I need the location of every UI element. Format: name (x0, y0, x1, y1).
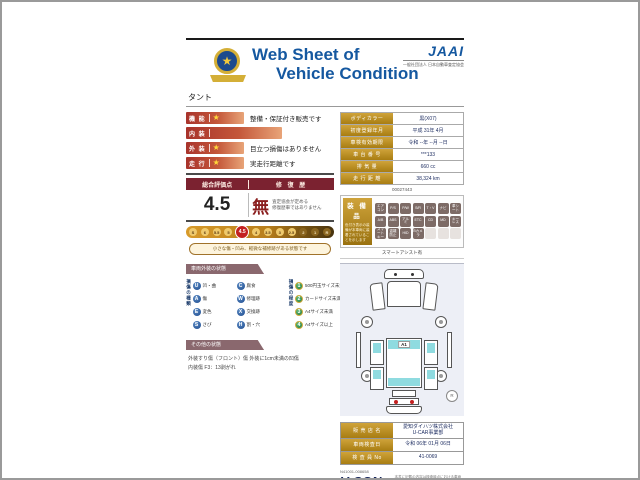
diagram-corner-mark: R (446, 390, 458, 402)
roof: A1 (386, 338, 422, 388)
rear-panel (389, 398, 419, 405)
sheet-header: ★ Web Sheet of Vehicle Condition JAAI 一般… (186, 44, 464, 90)
info-label: 車検有効期限 (341, 137, 393, 148)
damage-type-item: H割・穴 (237, 318, 283, 331)
equipment-badge: スマートキー (375, 228, 386, 239)
damage-type-item: A傷 (193, 292, 235, 305)
equipment-panel: 装 備 品 色付き表示の装備が本車両に装着されていることを示します エアコンP/… (340, 195, 464, 248)
repair-note-line1: 査定協会が定める (272, 199, 308, 204)
info-row: 排 気 量660 cc (341, 161, 463, 173)
rating-label: 走 行 (189, 159, 206, 168)
rating-bar: 機 能★ (186, 112, 244, 124)
rating-bar: 外 装★ (186, 142, 244, 154)
info-label: 排 気 量 (341, 161, 393, 172)
scale-value: 6 (201, 228, 209, 236)
equipment-badge: A/B (375, 216, 386, 227)
damage-type-item: C腐食 (237, 279, 283, 292)
damage-degree-code: 3 (295, 308, 303, 316)
door-window (427, 370, 435, 379)
door-window (373, 343, 381, 353)
rating-divider (209, 144, 210, 152)
top-rule (186, 38, 464, 40)
wheel-hub (439, 374, 443, 378)
damage-degree-label: 500円玉サイズ未満 (305, 283, 344, 289)
equipment-badge: P/W (400, 203, 411, 214)
scale-value: 5 (224, 228, 232, 236)
wheel-hub (365, 320, 369, 324)
rear-door-left (370, 367, 384, 390)
damage-degree-code: 4 (295, 321, 303, 329)
damage-degree-list: 1500円玉サイズ未満2カードサイズ未満3A4サイズ未満4A4サイズ以上 (295, 279, 344, 331)
dealer-label: 販 売 店 名 (341, 423, 393, 438)
damage-degree-label: A4サイズ以上 (305, 322, 333, 328)
door-window (373, 370, 381, 379)
damage-degree-item: 3A4サイズ未満 (295, 305, 344, 318)
equipment-badge: ナビ (438, 203, 449, 214)
score-scale-bar: S65.554.543.532.521R (186, 226, 334, 238)
tail-light-left (394, 400, 398, 404)
vcon-block: V-CON Vehicle Condition Check System (340, 475, 391, 480)
rating-rows: 機 能★整備・保証付き販売です内 装外 装★目立つ損傷はありません走 行★実走行… (186, 112, 334, 169)
equipment-badge: アルミ (400, 216, 411, 227)
scale-value: S (189, 228, 197, 236)
rating-divider (209, 129, 210, 137)
front-door-left (370, 340, 384, 365)
equipment-note: 色付き表示の装備が本車両に装着されていることを示します (345, 223, 370, 243)
star-icon: ★ (213, 159, 220, 167)
score-table: 総合評価点 修 復 歴 4.5 無 査定協会が定める 修復歴車ではありません (186, 178, 334, 222)
damage-type-item: U凹・曲 (193, 279, 235, 292)
vehicle-model-name: タント (186, 90, 464, 107)
front-fender-right (422, 282, 438, 310)
front-door-right (424, 340, 438, 365)
info-value: ***133 (393, 149, 463, 160)
info-row: 走 行 距 離38,324 km (341, 173, 463, 185)
rating-description: 目立つ損傷はありません (250, 143, 321, 153)
right-column: ボディカラー黒(X07)初度登録年月平成 31年 4月車検有効期限令和 --年 … (340, 112, 464, 480)
dealer-row: 車両検査日令和 06年 01月 06日 (341, 439, 463, 452)
bumper-dot (411, 273, 414, 276)
damage-type-label: さび (203, 322, 212, 328)
info-label: 初度登録年月 (341, 125, 393, 136)
equipment-badge: ETC (413, 216, 424, 227)
hood (387, 281, 421, 307)
damage-type-label: 腐食 (247, 283, 256, 289)
score-description: 小さな傷・凹み、軽微な補修跡がある状態です (189, 243, 331, 255)
sheet-title-line1: Web Sheet of (252, 46, 419, 65)
repair-history-value: 無 (252, 193, 269, 218)
damage-type-label: 修理跡 (247, 296, 261, 302)
wheel-front-left (361, 316, 373, 328)
score-table-body: 4.5 無 査定協会が定める 修復歴車ではありません (186, 190, 334, 220)
equipment-badge: S/R (413, 203, 424, 214)
dealer-row: 販 売 店 名愛知ダイハツ株式会社U-CAR事業部 (341, 423, 463, 439)
repair-note-line2: 修復歴車ではありません (272, 205, 321, 210)
rating-row: 内 装 (186, 127, 334, 139)
equipment-badge: CD (425, 216, 436, 227)
vcon-logo: V-CON (340, 475, 391, 480)
wheel-hub (439, 320, 443, 324)
info-row: 車 台 番 号***133 (341, 149, 463, 161)
repair-history-cell: 無 査定協会が定める 修復歴車ではありません (248, 193, 334, 217)
tailgate (392, 390, 416, 397)
damage-type-item: W修理跡 (237, 292, 283, 305)
left-column: 機 能★整備・保証付き販売です内 装外 装★目立つ損傷はありません走 行★実走行… (186, 112, 334, 480)
dealer-value: 令和 06年 01月 06日 (393, 439, 463, 451)
rating-row: 機 能★整備・保証付き販売です (186, 112, 334, 124)
info-label: 車 台 番 号 (341, 149, 393, 160)
scale-value: 1 (311, 228, 319, 236)
damage-type-label: 割・穴 (247, 322, 261, 328)
rating-bar: 走 行★ (186, 157, 244, 169)
equipment-badge: P/S (388, 203, 399, 214)
windshield: A1 (388, 340, 420, 349)
rating-label: 内 装 (189, 129, 206, 138)
damage-degree-code: 1 (295, 282, 303, 290)
info-label: 走 行 距 離 (341, 173, 393, 184)
rocker-panel-left (356, 332, 361, 368)
damage-type-code: U (193, 282, 201, 290)
equipment-badge: 盗難防止 (388, 228, 399, 239)
tail-light-right (410, 400, 414, 404)
damage-degree-item: 1500円玉サイズ未満 (295, 279, 344, 292)
damage-type-code: W (237, 295, 245, 303)
other-condition-line: 外装すり傷（フロント）傷 外装に1cm未満の凹傷 (188, 355, 334, 364)
damage-degree-label: カードサイズ未満 (305, 296, 341, 302)
rear-door-right (424, 367, 438, 390)
info-value: 令和 --年 --月 --日 (393, 137, 463, 148)
damage-type-label: 凹・曲 (203, 283, 217, 289)
damage-type-code: S (193, 321, 201, 329)
damage-type-label: 傷 (203, 296, 208, 302)
rating-description: 整備・保証付き販売です (250, 113, 322, 123)
dealer-value-line: U-CAR事業部 (413, 430, 444, 437)
dealer-value: 愛知ダイハツ株式会社U-CAR事業部 (393, 423, 463, 438)
damage-degree-label: A4サイズ未満 (305, 309, 333, 315)
info-row: 車検有効期限令和 --年 --月 --日 (341, 137, 463, 149)
dealer-info-table: 販 売 店 名愛知ダイハツ株式会社U-CAR事業部車両検査日令和 06年 01月… (340, 422, 464, 465)
scale-value: R (323, 228, 331, 236)
equipment-badge: Bカメラ (413, 228, 424, 239)
wheel-front-right (435, 316, 447, 328)
equipment-badge (425, 228, 436, 239)
rear-bumper (386, 406, 422, 414)
sheet-body: ★ Web Sheet of Vehicle Condition JAAI 一般… (186, 38, 464, 480)
info-row: ボディカラー黒(X07) (341, 113, 463, 125)
rating-label: 外 装 (189, 144, 206, 153)
damage-type-label: 交換跡 (247, 309, 261, 315)
damage-type-item: Sさび (193, 318, 235, 331)
damage-type-code: A (193, 295, 201, 303)
damage-degree-title: 損傷の程度 (289, 279, 294, 331)
scale-value: 5.5 (213, 228, 221, 236)
scale-value: 2 (299, 228, 307, 236)
info-value: 660 cc (393, 161, 463, 172)
dealer-row: 検 査 員 No41-0069 (341, 452, 463, 465)
other-condition-text: 外装すり傷（フロント）傷 外装に1cm未満の凹傷内装傷 F3：13剥がれ (186, 355, 334, 372)
overall-score-header: 総合評価点 (186, 180, 249, 189)
door-window (427, 343, 435, 353)
divider (186, 173, 334, 175)
damage-type-code: H (237, 321, 245, 329)
rating-divider (209, 159, 210, 167)
section-tab-other: その他の状態 (186, 340, 264, 350)
scale-value: 2.5 (288, 228, 296, 236)
equipment-badges: エアコンP/SP/WS/RT・Vナビ革シートA/BABSアルミETCCDMDキー… (375, 198, 461, 245)
rating-row: 外 装★目立つ損傷はありません (186, 142, 334, 154)
equipment-badge: MD (438, 216, 449, 227)
damage-type-code: X (237, 308, 245, 316)
rating-description: 実走行距離です (250, 158, 296, 168)
equipment-badge: エアコン (375, 203, 386, 214)
jaai-logo: JAAI (403, 44, 464, 58)
dealer-label: 検 査 員 No (341, 452, 393, 464)
footer-row: V-CON Vehicle Condition Check System 本書に… (340, 475, 464, 480)
equipment-badge (438, 228, 449, 239)
exterior-legend: 損傷の種類 U凹・曲C腐食A傷W修理跡E変色X交換跡SさびH割・穴 損傷の程度 … (186, 279, 334, 331)
sheet-title-line2: Vehicle Condition (276, 65, 419, 84)
overall-score-value: 4.5 (186, 194, 248, 216)
equipment-badge: HID (400, 228, 411, 239)
star-icon: ★ (222, 55, 233, 67)
info-row: 初度登録年月平成 31年 4月 (341, 125, 463, 137)
jaai-brand: JAAI 一般社団法人 日本自動車査定協会 (403, 44, 464, 68)
rating-row: 走 行★実走行距離です (186, 157, 334, 169)
rear-window (388, 378, 420, 386)
damage-type-item: E変色 (193, 305, 235, 318)
car-damage-diagram: A1 R (340, 263, 464, 416)
vehicle-condition-sheet: ★ Web Sheet of Vehicle Condition JAAI 一般… (0, 0, 640, 480)
info-value: 黒(X07) (393, 113, 463, 124)
front-bumper (384, 269, 424, 279)
dealer-value-line: 41-0069 (419, 454, 437, 461)
rating-bar: 内 装 (186, 127, 282, 139)
star-icon: ★ (213, 114, 220, 122)
section-tab-exterior: 車両外装の状態 (186, 264, 264, 274)
damage-type-list: U凹・曲C腐食A傷W修理跡E変色X交換跡SさびH割・穴 (193, 279, 283, 331)
equipment-badge: T・V (425, 203, 436, 214)
damage-type-code: C (237, 282, 245, 290)
info-value: 38,324 km (393, 173, 463, 184)
damage-type-label: 変色 (203, 309, 212, 315)
equipment-footer: スマートアシスト有 (340, 250, 464, 259)
damage-type-code: E (193, 308, 201, 316)
sheet-title: Web Sheet of Vehicle Condition (252, 46, 419, 83)
equipment-badge: キーレス (450, 216, 461, 227)
dealer-label: 車両検査日 (341, 439, 393, 451)
score-description-text: 小さな傷・凹み、軽微な補修跡がある状態です (213, 246, 308, 251)
damage-marker-a1: A1 (398, 341, 410, 348)
repair-history-note: 査定協会が定める 修復歴車ではありません (272, 199, 321, 211)
damage-degree-item: 4A4サイズ以上 (295, 318, 344, 331)
dealer-value-line: 令和 06年 01月 06日 (405, 441, 451, 448)
repair-history-header: 修 復 歴 (249, 180, 334, 189)
scale-value: 3.5 (264, 228, 272, 236)
info-value: 平成 31年 4月 (393, 125, 463, 136)
equipment-title: 装 備 品 (345, 200, 370, 220)
reference-number: 00027443 (340, 187, 464, 192)
jaai-emblem-icon: ★ (214, 48, 240, 74)
info-label: ボディカラー (341, 113, 393, 124)
damage-degree-code: 2 (295, 295, 303, 303)
vehicle-info-table: ボディカラー黒(X07)初度登録年月平成 31年 4月車検有効期限令和 --年 … (340, 112, 464, 185)
rocker-panel-right (447, 332, 452, 368)
scale-value: 4 (252, 228, 260, 236)
equipment-badge: ABS (388, 216, 399, 227)
equipment-label-cell: 装 備 品 色付き表示の装備が本車両に装着されていることを示します (343, 198, 372, 245)
scale-value: 3 (276, 228, 284, 236)
equipment-badge: 革シート (450, 203, 461, 214)
wheel-hub (365, 374, 369, 378)
star-icon: ★ (213, 144, 220, 152)
sheet-serial-number: N41001-008658 (340, 469, 464, 474)
bumper-dot (394, 273, 397, 276)
emblem-ribbon (210, 75, 246, 82)
dealer-value: 41-0069 (393, 452, 463, 464)
damage-type-item: X交換跡 (237, 305, 283, 318)
damage-degree-item: 2カードサイズ未満 (295, 292, 344, 305)
jaai-subtitle: 一般社団法人 日本自動車査定協会 (403, 60, 464, 68)
score-table-header: 総合評価点 修 復 歴 (186, 178, 334, 190)
rating-label: 機 能 (189, 114, 206, 123)
scale-selected-value: 4.5 (236, 226, 248, 238)
equipment-badge (450, 228, 461, 239)
rating-divider (209, 114, 210, 122)
footer-disclaimer: 本書に記載の内容は検査時点における車両の状態を示すものです。その後の使用・保管状… (395, 475, 464, 480)
front-fender-left (369, 282, 385, 310)
other-condition-line: 内装傷 F3：13剥がれ (188, 364, 334, 373)
damage-type-title: 損傷の種類 (186, 279, 191, 331)
